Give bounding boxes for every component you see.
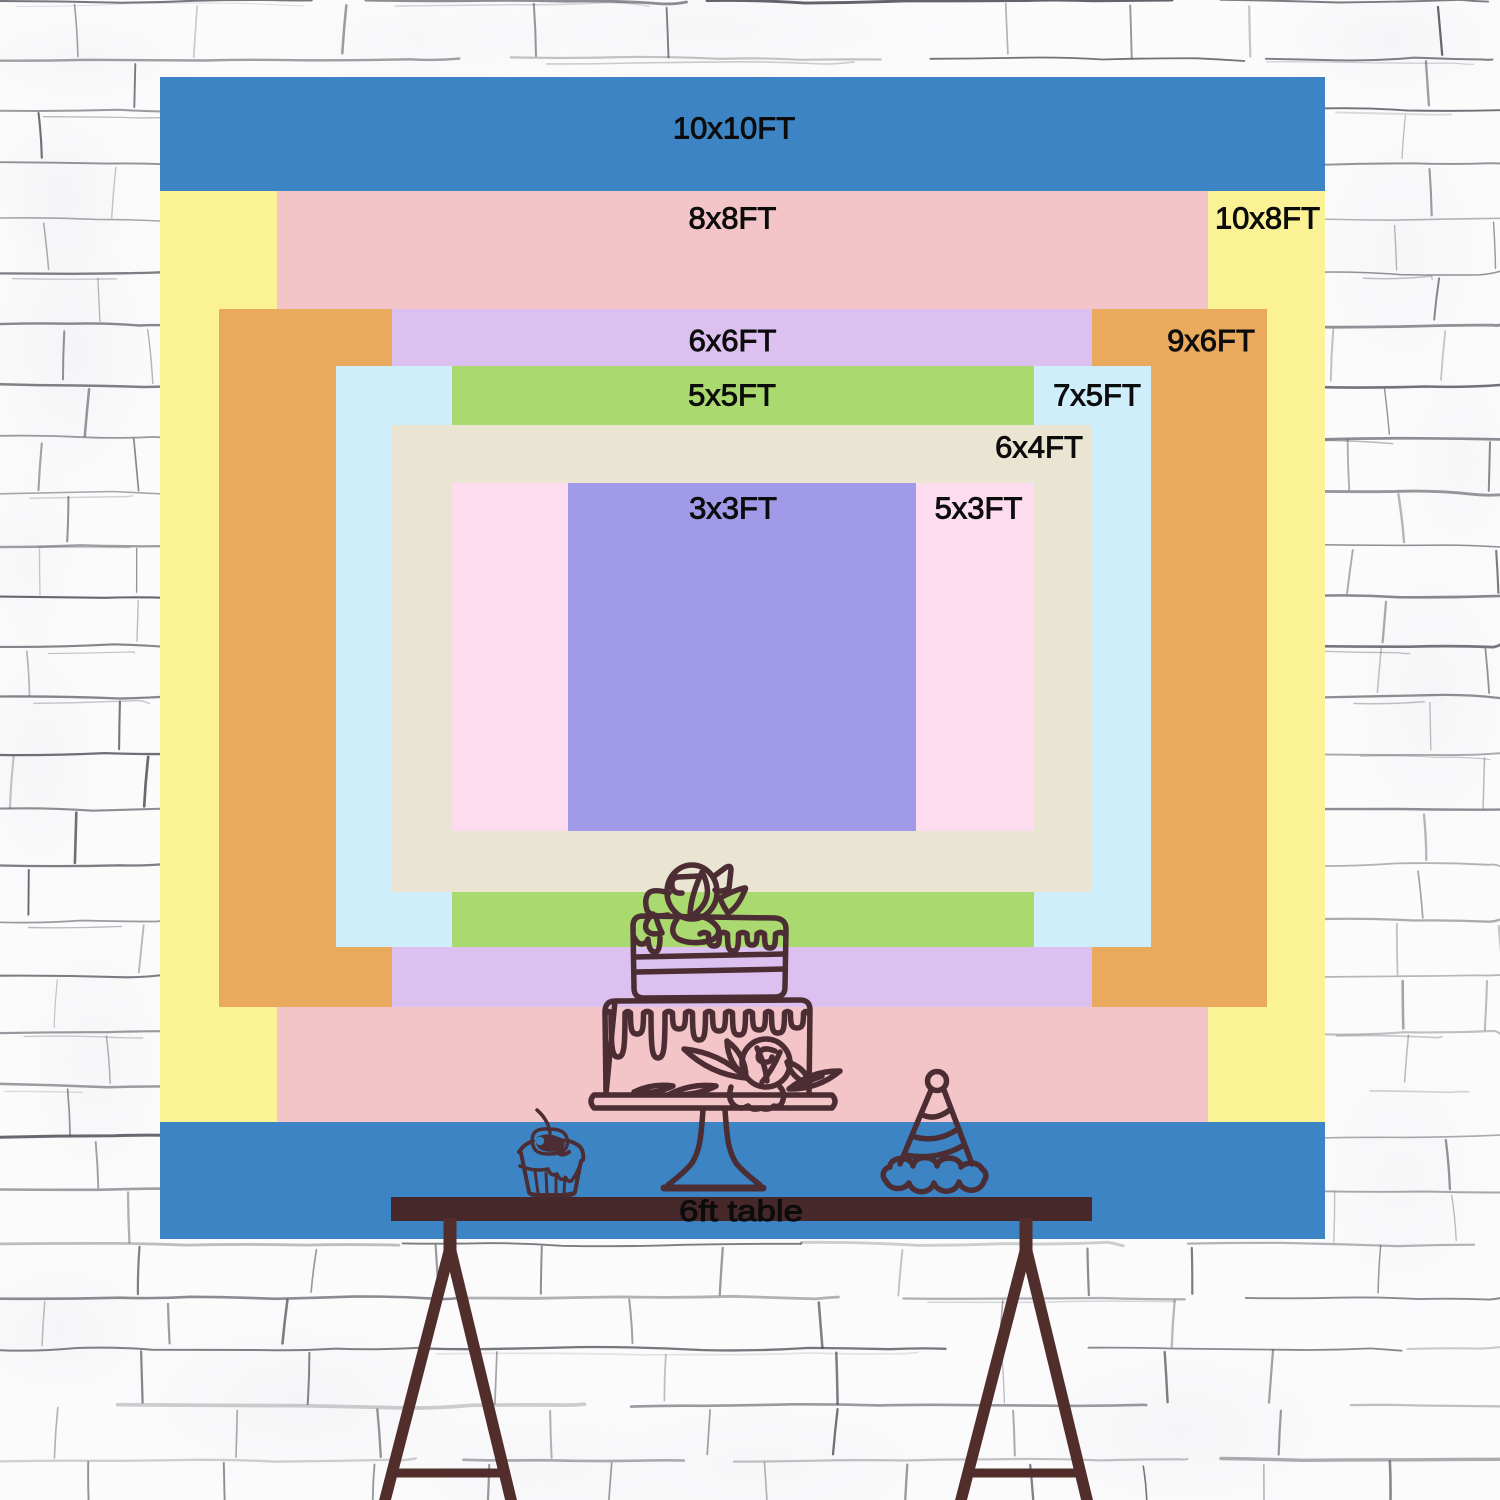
svg-text:6x4FT: 6x4FT <box>995 429 1083 464</box>
svg-text:5x5FT: 5x5FT <box>688 377 776 412</box>
svg-text:7x5FT: 7x5FT <box>1053 377 1141 412</box>
svg-text:9x6FT: 9x6FT <box>1167 323 1255 358</box>
svg-text:3x3FT: 3x3FT <box>689 490 777 525</box>
svg-text:10x8FT: 10x8FT <box>1215 200 1320 235</box>
svg-text:6x6FT: 6x6FT <box>689 323 777 358</box>
svg-text:6ft table: 6ft table <box>679 1195 803 1228</box>
svg-text:10x10FT: 10x10FT <box>673 111 795 146</box>
svg-text:8x8FT: 8x8FT <box>688 200 776 235</box>
svg-text:5x3FT: 5x3FT <box>935 490 1023 525</box>
